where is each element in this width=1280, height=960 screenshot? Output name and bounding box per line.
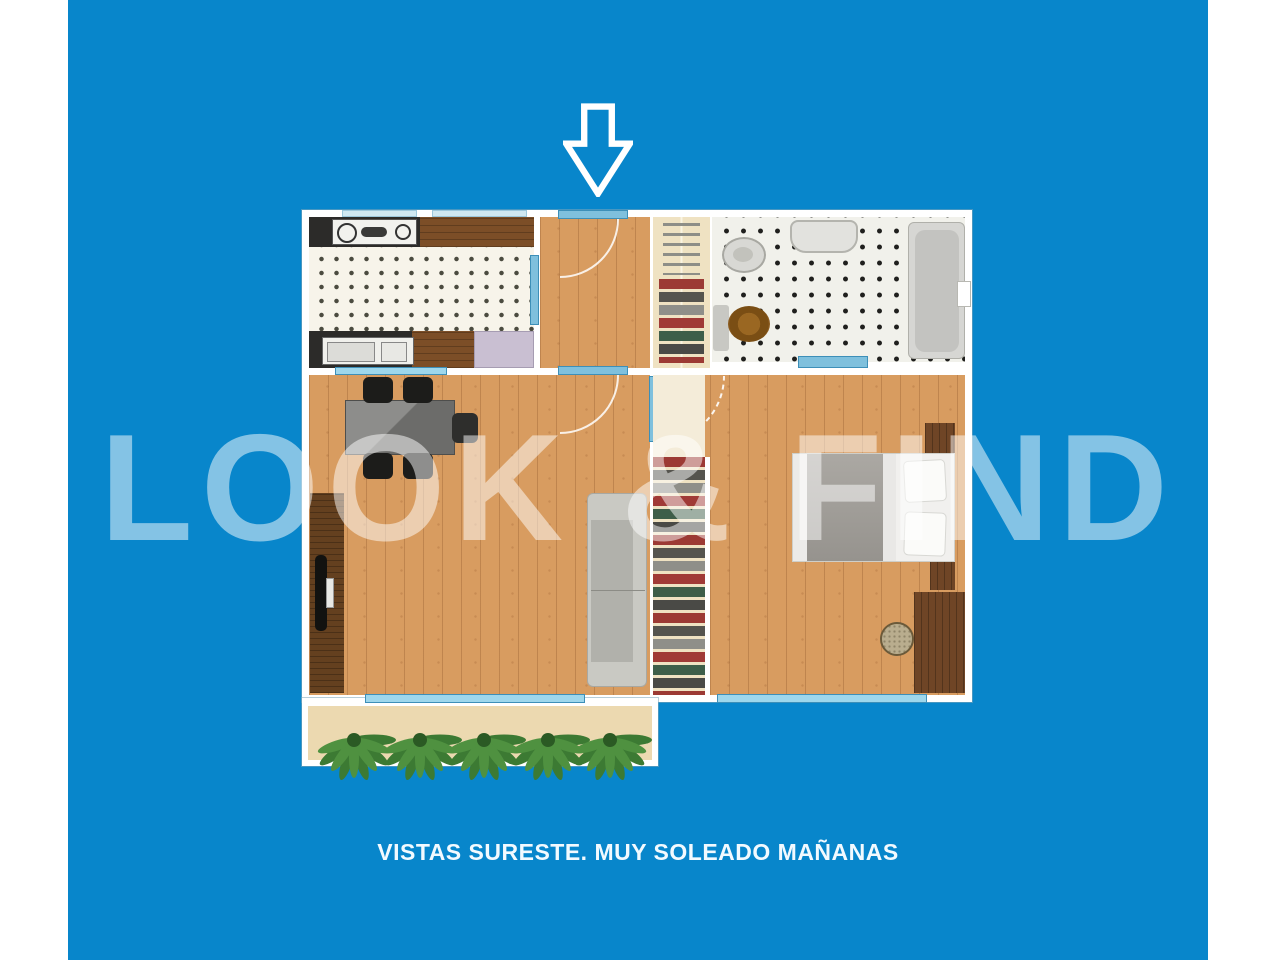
- entry-door-swing: [560, 219, 618, 277]
- bath-rug: [728, 306, 770, 342]
- grill-icon: [361, 227, 387, 237]
- watermark: LOOK & FIND: [68, 412, 1208, 564]
- burner-icon: [337, 223, 357, 243]
- blue-canvas: LOOK & FIND VISTAS SURESTE. MUY SOLEADO …: [68, 0, 1208, 960]
- tv-stand: [326, 578, 334, 608]
- kitchen-counter-top-wood: [420, 217, 534, 247]
- closet-clothes: [659, 279, 704, 363]
- dining-chair: [363, 377, 393, 403]
- round-rug: [880, 622, 914, 656]
- hall-closet: [653, 217, 710, 368]
- dining-chair: [403, 377, 433, 403]
- sofa-seat-divider: [591, 590, 645, 591]
- bedroom-window: [717, 694, 927, 703]
- stove: [332, 219, 417, 245]
- kitchen-window: [342, 210, 417, 217]
- washbasin: [790, 220, 858, 253]
- refrigerator: [474, 331, 534, 368]
- bathroom-door-handle: [957, 281, 971, 307]
- caption-text: VISTAS SURESTE. MUY SOLEADO MAÑANAS: [68, 839, 1208, 866]
- kitchen-window: [432, 210, 527, 217]
- sink-drainer: [381, 342, 407, 362]
- toilet-bowl: [733, 247, 753, 262]
- bathtub-basin: [915, 230, 959, 352]
- sink-basin: [327, 342, 375, 362]
- hall-living-door: [558, 366, 628, 375]
- kitchen-sink: [322, 337, 414, 365]
- burner-icon: [395, 224, 411, 240]
- kitchen-counter-bottom-wood: [412, 331, 474, 368]
- bathroom-door: [798, 356, 868, 368]
- down-arrow-icon: [563, 103, 633, 197]
- closet-shelves: [663, 223, 700, 275]
- bath-mat: [713, 305, 729, 351]
- kitchen-floor: [309, 247, 534, 331]
- entry-door: [558, 210, 628, 219]
- terrace-plants: [312, 696, 648, 786]
- wardrobe: [914, 592, 965, 693]
- kitchen-pass-window: [335, 367, 447, 375]
- toilet: [722, 237, 766, 273]
- kitchen-door: [530, 255, 539, 325]
